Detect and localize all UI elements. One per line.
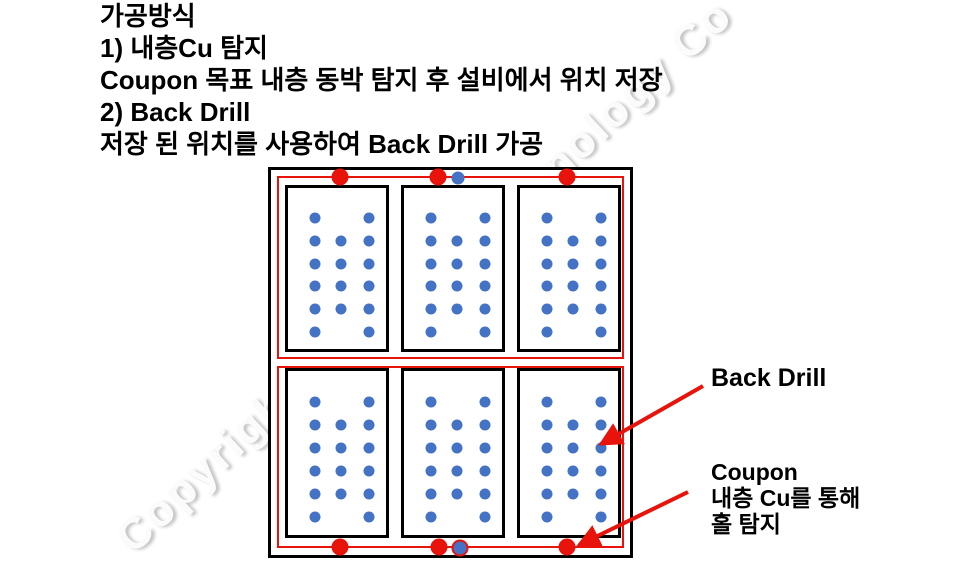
via-dot xyxy=(542,489,553,500)
via-dot xyxy=(452,258,463,269)
text-line-title: 가공방식 xyxy=(100,0,663,32)
via-dot xyxy=(480,489,491,500)
via-dot xyxy=(364,489,375,500)
via-dot xyxy=(480,303,491,314)
via-dot xyxy=(542,235,553,246)
via-dot xyxy=(310,258,321,269)
via-dot xyxy=(310,281,321,292)
via-dot xyxy=(480,213,491,224)
via-dot xyxy=(426,326,437,337)
via-dot xyxy=(452,281,463,292)
via-dot xyxy=(364,303,375,314)
via-dot xyxy=(596,326,607,337)
coupon-panel xyxy=(517,368,621,538)
via-dot xyxy=(542,419,553,430)
text-line-step2: 2) Back Drill xyxy=(100,96,663,128)
via-dot xyxy=(336,303,347,314)
via-dot xyxy=(426,466,437,477)
via-dot xyxy=(336,466,347,477)
via-dot xyxy=(596,396,607,407)
text-line-step2-detail: 저장 된 위치를 사용하여 Back Drill 가공 xyxy=(100,128,663,160)
via-dot xyxy=(426,489,437,500)
tooling-hole-red xyxy=(559,169,576,186)
via-dot xyxy=(568,466,579,477)
via-dot xyxy=(364,419,375,430)
via-dot xyxy=(336,489,347,500)
tooling-hole-red xyxy=(332,539,349,556)
via-dot xyxy=(596,281,607,292)
via-dot xyxy=(480,258,491,269)
via-dot xyxy=(596,419,607,430)
via-dot xyxy=(336,281,347,292)
via-dot xyxy=(452,489,463,500)
via-dot xyxy=(452,419,463,430)
via-dot xyxy=(542,281,553,292)
via-dot xyxy=(364,258,375,269)
via-dot xyxy=(364,396,375,407)
via-dot xyxy=(364,235,375,246)
via-dot xyxy=(480,396,491,407)
via-dot xyxy=(596,213,607,224)
via-dot xyxy=(364,512,375,523)
coupon-label: Coupon 내층 Cu를 통해 홀 탐지 xyxy=(711,459,860,537)
via-dot xyxy=(568,258,579,269)
via-dot xyxy=(310,235,321,246)
via-dot xyxy=(596,303,607,314)
via-dot xyxy=(336,235,347,246)
via-dot xyxy=(426,512,437,523)
via-dot xyxy=(310,419,321,430)
via-dot xyxy=(568,281,579,292)
via-dot xyxy=(568,235,579,246)
coupon-panel xyxy=(285,185,389,352)
via-dot xyxy=(310,489,321,500)
detect-hole-blue xyxy=(452,172,465,185)
via-dot xyxy=(310,512,321,523)
coupon-label-line-3: 홀 탐지 xyxy=(711,511,860,537)
via-dot xyxy=(364,213,375,224)
via-dot xyxy=(426,442,437,453)
via-dot xyxy=(568,489,579,500)
via-dot xyxy=(364,442,375,453)
via-dot xyxy=(568,303,579,314)
coupon-label-line-2: 내층 Cu를 통해 xyxy=(711,485,860,511)
via-dot xyxy=(596,489,607,500)
via-dot xyxy=(542,512,553,523)
via-dot xyxy=(310,396,321,407)
via-dot xyxy=(452,442,463,453)
tooling-hole-red xyxy=(332,169,349,186)
via-dot xyxy=(364,281,375,292)
via-dot xyxy=(596,442,607,453)
via-dot xyxy=(336,258,347,269)
via-dot xyxy=(426,235,437,246)
tooling-hole-red xyxy=(559,539,576,556)
via-dot xyxy=(480,442,491,453)
coupon-panel xyxy=(517,185,621,352)
via-dot xyxy=(542,466,553,477)
coupon-panel xyxy=(401,368,505,538)
via-dot xyxy=(480,235,491,246)
via-dot xyxy=(452,466,463,477)
via-dot xyxy=(310,303,321,314)
via-dot xyxy=(426,258,437,269)
via-dot xyxy=(310,466,321,477)
via-dot xyxy=(426,303,437,314)
via-dot xyxy=(336,419,347,430)
via-dot xyxy=(480,419,491,430)
via-dot xyxy=(596,235,607,246)
coupon-panel xyxy=(285,368,389,538)
via-dot xyxy=(426,419,437,430)
via-dot xyxy=(568,442,579,453)
tooling-hole-red xyxy=(430,169,447,186)
via-dot xyxy=(542,326,553,337)
via-dot xyxy=(542,258,553,269)
via-dot xyxy=(542,303,553,314)
coupon-label-line-1: Coupon xyxy=(711,459,860,485)
detect-hole-blue xyxy=(454,542,467,555)
process-description: 가공방식 1) 내층Cu 탐지 Coupon 목표 내층 동박 탐지 후 설비에… xyxy=(100,0,663,160)
coupon-panel xyxy=(401,185,505,352)
via-dot xyxy=(480,466,491,477)
via-dot xyxy=(480,326,491,337)
via-dot xyxy=(310,213,321,224)
via-dot xyxy=(480,512,491,523)
via-dot xyxy=(426,213,437,224)
via-dot xyxy=(542,396,553,407)
via-dot xyxy=(310,326,321,337)
via-dot xyxy=(310,442,321,453)
via-dot xyxy=(596,466,607,477)
via-dot xyxy=(568,419,579,430)
tooling-hole-red xyxy=(431,539,448,556)
via-dot xyxy=(364,326,375,337)
back-drill-label: Back Drill xyxy=(711,364,826,393)
text-line-step1-detail: Coupon 목표 내층 동박 탐지 후 설비에서 위치 저장 xyxy=(100,64,663,96)
via-dot xyxy=(364,466,375,477)
via-dot xyxy=(452,303,463,314)
pcb-panel-diagram xyxy=(268,167,633,558)
via-dot xyxy=(542,442,553,453)
via-dot xyxy=(596,512,607,523)
via-dot xyxy=(426,396,437,407)
slide: { "page": { "background": "#ffffff" }, "… xyxy=(0,0,960,575)
via-dot xyxy=(452,235,463,246)
via-dot xyxy=(480,281,491,292)
via-dot xyxy=(426,281,437,292)
via-dot xyxy=(596,258,607,269)
text-line-step1: 1) 내층Cu 탐지 xyxy=(100,32,663,64)
via-dot xyxy=(336,442,347,453)
via-dot xyxy=(542,213,553,224)
